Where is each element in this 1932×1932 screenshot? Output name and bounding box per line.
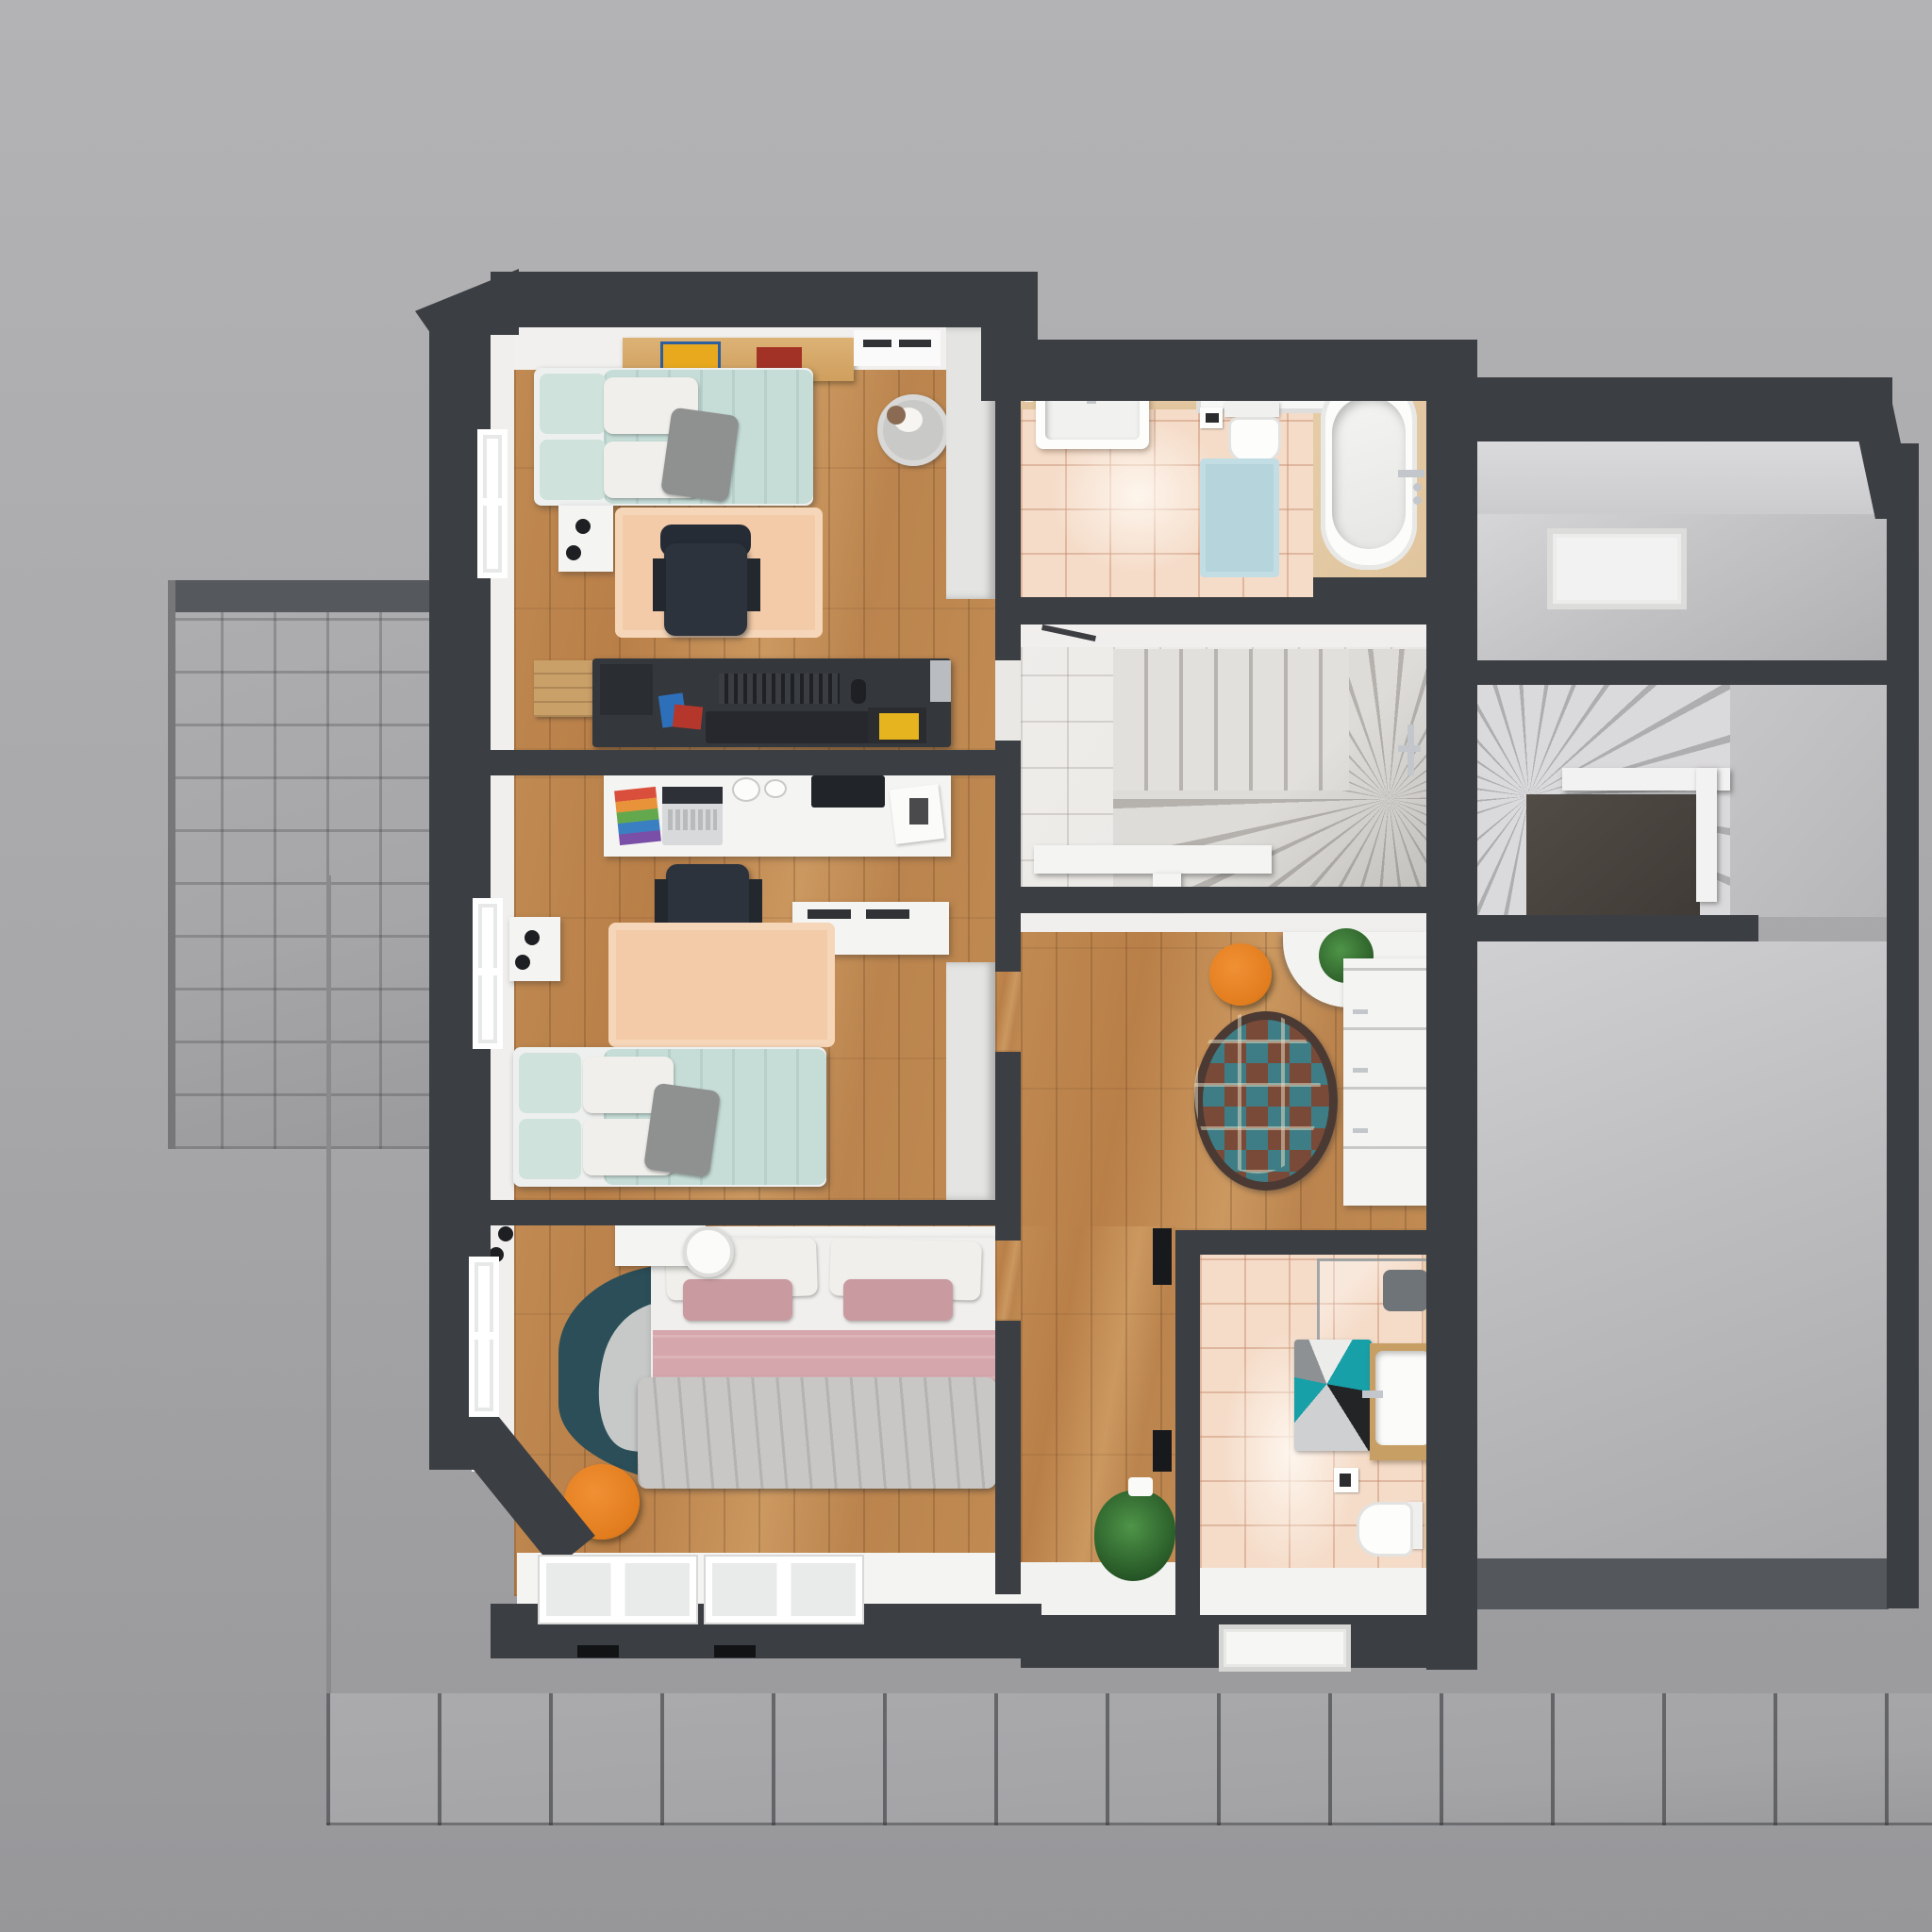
bay-window-vent	[714, 1645, 756, 1657]
faucet-icon	[1362, 1391, 1383, 1398]
window-mullion	[469, 1332, 499, 1340]
nightstand1	[558, 506, 613, 572]
pouf-orange-hall	[1209, 943, 1272, 1006]
wall-bedroom1-2	[481, 750, 1021, 775]
bed2-pillow-teal	[519, 1053, 581, 1113]
wall-top-right	[1451, 377, 1892, 441]
bay-window-pane	[706, 1557, 862, 1623]
vent-slot-icon	[899, 340, 931, 347]
bath-mat-blue	[1200, 458, 1279, 577]
window-mullion	[477, 498, 508, 506]
desk-valet-tray	[811, 775, 885, 808]
attic-bottom-wall-band	[1477, 1558, 1889, 1609]
bed3-pillow-pink	[683, 1279, 792, 1321]
laptop-keyboard	[668, 809, 717, 830]
bed2-pillow-teal	[519, 1119, 581, 1179]
wall-bedrooms-middle	[995, 741, 1021, 972]
wall-hall-bathroom2	[1175, 1230, 1460, 1255]
floor-plan-render	[0, 0, 1932, 1932]
window-mullion	[473, 968, 503, 975]
sink-basin-2	[1375, 1351, 1430, 1445]
bed3-pillow-pink	[843, 1279, 953, 1321]
wall-right-outer	[1887, 443, 1919, 1608]
photo-print	[909, 798, 928, 824]
tub-knob-icon	[1413, 496, 1422, 505]
bed1-pillow-gray	[660, 407, 740, 502]
stairwell-void	[1526, 794, 1700, 915]
attic-bottom-room-floor	[1475, 941, 1887, 1558]
vent-slot-icon	[808, 909, 851, 919]
wall-bedrooms-middle	[995, 1321, 1021, 1594]
chair1-seat	[664, 543, 747, 636]
picture-frame	[1153, 1228, 1172, 1285]
bed1-pillow-teal	[540, 440, 606, 500]
vent-slot-icon	[863, 340, 891, 347]
door-opening-bedroom2	[995, 972, 1021, 1052]
bathtub-basin	[1332, 396, 1406, 549]
door-opening-bedroom1	[995, 660, 1021, 741]
lamp-icon	[575, 519, 591, 534]
attic-railing-vertical	[1696, 768, 1717, 902]
bay-window-vent	[577, 1645, 619, 1657]
rug-peach-bedroom2	[608, 923, 835, 1047]
bath-rug-geometric	[1294, 1340, 1372, 1451]
rainbow-notebook	[614, 787, 661, 845]
ground-floor-edge-line	[326, 875, 331, 1696]
toilet-paper-roll	[1206, 413, 1219, 423]
hall-top-face	[1021, 913, 1426, 932]
wooden-crate	[534, 660, 592, 717]
bed1-pillow-teal	[540, 374, 606, 434]
skylight	[1547, 528, 1687, 609]
shower-head-icon	[1383, 1270, 1428, 1311]
wall-top-left	[491, 272, 1021, 327]
hall-dresser	[1343, 958, 1426, 1206]
laptop-screen	[662, 787, 723, 804]
rug-grid-overlay	[1194, 1011, 1321, 1174]
drawer-handle-icon	[1353, 1068, 1368, 1073]
wall-bedrooms-middle	[995, 1052, 1021, 1241]
attic-top-wall-face	[1475, 441, 1887, 517]
toilet-paper-roll	[1340, 1474, 1351, 1487]
lamp-icon	[566, 545, 581, 560]
toilet	[1228, 417, 1281, 464]
tub-knob-icon	[1413, 483, 1422, 491]
notepad-yellow	[879, 713, 919, 740]
plant-pot	[1128, 1477, 1153, 1496]
speaker	[930, 660, 951, 702]
wall-attic-stairs-bottom	[1451, 915, 1758, 941]
nightstand2	[509, 917, 560, 981]
vent-panel	[854, 330, 941, 366]
drawer-handle-icon	[1353, 1128, 1368, 1133]
round-lamp-icon	[683, 1226, 734, 1277]
desk-bowl	[732, 777, 760, 802]
stair-railing-horizontal	[1034, 845, 1272, 874]
wall-stairs-hall	[1021, 887, 1426, 913]
bathroom2-bottom-face	[1200, 1568, 1426, 1615]
walkway-pavers	[326, 1693, 1932, 1825]
lamp-icon	[515, 955, 530, 970]
wall-bathroom2-left	[1175, 1255, 1200, 1615]
bed3-blanket-gray	[638, 1377, 996, 1489]
keyboard	[719, 674, 840, 704]
chair1-armrest	[747, 558, 760, 611]
drawer-handle-icon	[1353, 1009, 1368, 1014]
toilet-cistern	[1224, 402, 1279, 417]
balcony-rail	[168, 580, 175, 1149]
door-opening-bedroom3	[995, 1241, 1021, 1321]
door-handle-icon	[1398, 745, 1421, 752]
laundry-clothes	[887, 406, 906, 425]
lamp-icon	[498, 1226, 513, 1241]
mouse	[851, 679, 866, 704]
wall-attic-top-stairs	[1451, 660, 1892, 685]
bed2-pillow-gray	[643, 1083, 721, 1178]
wall-top-step	[981, 272, 1038, 401]
wall-middle-right	[1426, 340, 1477, 1670]
toilet-2	[1357, 1502, 1413, 1557]
notebook-red	[673, 704, 703, 729]
wall-top-middle	[1021, 340, 1451, 401]
bathroom2-window	[1219, 1624, 1351, 1672]
desk-organizer	[600, 664, 653, 715]
bay-window-pane	[540, 1557, 696, 1623]
lamp-icon	[525, 930, 540, 945]
wall-bedroom2-3	[481, 1200, 1021, 1225]
desk-bowl	[764, 779, 787, 798]
vent-slot-icon	[866, 909, 909, 919]
picture-frame	[1153, 1430, 1172, 1472]
tub-faucet-icon	[1398, 470, 1424, 477]
wardrobe2	[946, 962, 995, 1200]
chair1-armrest	[653, 558, 666, 611]
